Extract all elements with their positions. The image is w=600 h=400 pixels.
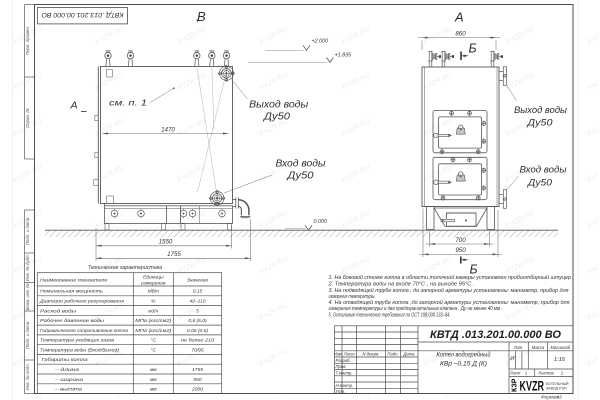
svg-text:%: % [151,299,156,305]
svg-text:Инв. № дубл.: Инв. № дубл. [25,254,30,281]
svg-text:Габариты котла: Габариты котла [42,357,88,363]
svg-text:КВТД .013.201.00.000 ВО: КВТД .013.201.00.000 ВО [430,329,561,341]
svg-text:МПа (кгс/см2): МПа (кгс/см2) [135,318,171,324]
svg-text:Дата: Дата [402,352,415,357]
svg-text:– ширина: – ширина [54,378,84,383]
svg-text:Утв.: Утв. [336,389,346,394]
svg-text:см. п. 1: см. п. 1 [109,98,147,108]
svg-text:мм: мм [150,368,157,373]
svg-text:1755: 1755 [192,367,203,373]
svg-text:1470: 1470 [161,127,175,134]
svg-text:0,6 (6,0): 0,6 (6,0) [188,318,207,324]
svg-text:700: 700 [455,237,466,244]
svg-text:не более 210: не более 210 [181,338,214,344]
svg-text:мм: мм [150,378,157,383]
svg-text:KVZR: KVZR [520,379,545,394]
svg-text:мм: мм [150,388,157,393]
svg-text:Вход воды: Вход воды [276,159,327,170]
svg-text:Ду50: Ду50 [286,171,314,182]
svg-text:Н.контр.: Н.контр. [336,383,354,388]
svg-text:Подп.: Подп. [387,352,398,357]
svg-text:ЗАВОД РЭП: ЗАВОД РЭП [546,386,567,390]
svg-text:1550: 1550 [159,238,173,245]
svg-text:Ду50: Ду50 [263,112,291,123]
svg-text:Перв. примен.: Перв. примен. [25,26,30,55]
svg-text:5. Остальные технические треб: 5. Остальные технические требования по О… [329,313,451,319]
svg-text:Пров.: Пров. [336,364,347,369]
svg-text:Т.контр.: Т.контр. [336,370,353,375]
svg-text:5: 5 [196,308,199,314]
svg-text:измерения: измерения [141,281,166,286]
svg-text:А: А [454,10,464,25]
svg-text:м3/ч: м3/ч [148,308,158,314]
svg-text:°С: °С [151,347,157,353]
svg-text:Лист: Лист [509,371,521,376]
svg-text:В: В [197,9,206,24]
svg-text:Температура уходящих газов: Температура уходящих газов [40,338,114,344]
svg-text:– длина: – длина [54,367,80,373]
svg-text:2. Температура воды на входе: 2. Температура воды на входе 70°С , на в… [327,282,474,288]
svg-text:Масса: Масса [532,345,545,350]
svg-text:Диапазон рабочего регулировани: Диапазон рабочего регулирования [39,299,124,305]
svg-text:измерения температуры и два пр: измерения температуры и два предохраните… [329,306,503,312]
svg-text:Ду50: Ду50 [527,178,553,189]
svg-text:0,15: 0,15 [193,289,203,295]
svg-text:Техническая характеристика: Техническая характеристика [88,265,162,271]
svg-text:Выход воды: Выход воды [249,100,309,111]
svg-text:Справ. №: Справ. № [25,108,30,128]
svg-text:МПа (кгс/см2): МПа (кгс/см2) [135,328,171,334]
svg-text:Значение: Значение [187,277,209,283]
svg-text:Расход воды: Расход воды [40,308,76,314]
svg-text:МВт: МВт [148,289,159,295]
svg-text:КВТД .013.201.00.000 ВО: КВТД .013.201.00.000 ВО [41,11,124,18]
svg-text:Лит.: Лит. [513,345,524,350]
svg-text:– высота: – высота [54,388,83,393]
svg-text:0,06 (0,6): 0,06 (0,6) [187,328,208,334]
svg-text:1:15: 1:15 [554,357,566,363]
svg-text:Вход воды: Вход воды [520,165,567,176]
svg-text:КОТЕЛЬНЫЙ: КОТЕЛЬНЫЙ [546,382,569,386]
svg-text:Единицы: Единицы [143,275,164,281]
svg-text:измерения температуры.: измерения температуры. [329,294,376,300]
svg-text:Гидравлическое сопротивление к: Гидравлическое сопротивление котла [40,328,128,334]
svg-text:КЗР: КЗР [511,378,518,392]
svg-text:2000: 2000 [191,387,203,393]
svg-text:70/95: 70/95 [191,347,204,353]
svg-text:Номинальная мощность: Номинальная мощность [40,289,103,295]
svg-text:0.000: 0.000 [314,219,328,225]
svg-text:КВр –0,15 Д (К): КВр –0,15 Д (К) [440,361,487,368]
svg-text:1755: 1755 [167,251,181,258]
svg-text:+1.835: +1.835 [335,53,353,59]
svg-text:Лист: Лист [343,352,355,357]
svg-text:3. На подводящей трубе котла: 3. На подводящей трубе котла , до запорн… [329,287,569,294]
svg-text:Наименование показателя: Наименование показателя [40,277,107,283]
svg-text:Масштаб: Масштаб [551,345,571,350]
svg-text:Рабочее давление воды: Рабочее давление воды [40,318,104,324]
svg-text:+2.000: +2.000 [312,39,329,45]
svg-text:950: 950 [455,247,466,254]
svg-text:А3: А3 [555,394,562,399]
svg-text:Изм.: Изм. [334,352,343,357]
svg-text:950: 950 [193,377,201,383]
svg-text:40–110: 40–110 [190,299,206,305]
svg-text:°С: °С [151,338,157,344]
svg-text:Листов: Листов [537,371,554,376]
svg-text:N докум.: N докум. [363,352,380,357]
svg-text:Разраб.: Разраб. [336,358,351,363]
svg-text:Б: Б [469,42,477,56]
svg-text:Температура воды (Вход/Выход): Температура воды (Вход/Выход) [40,347,119,353]
svg-text:1. На боковой стенке котла в: 1. На боковой стенке котла в области топ… [329,274,572,281]
svg-text:Подп. и дата: Подп. и дата [25,217,30,245]
svg-text:Подп. и дата: Подп. и дата [25,321,30,349]
svg-text:Взам. инв. №: Взам. инв. № [25,283,30,310]
svg-text:Инв. № подл.: Инв. № подл. [25,363,30,390]
svg-text:4. На отводящей трубе котла ,: 4. На отводящей трубе котла ,до запорной… [329,299,570,306]
svg-text:Ду50: Ду50 [526,118,553,129]
svg-text:860: 860 [455,30,466,37]
svg-text:Выход воды: Выход воды [514,105,567,116]
svg-text:Котел водогрейный: Котел водогрейный [437,351,491,359]
svg-text:А: А [70,100,78,112]
svg-text:1: 1 [525,371,527,376]
